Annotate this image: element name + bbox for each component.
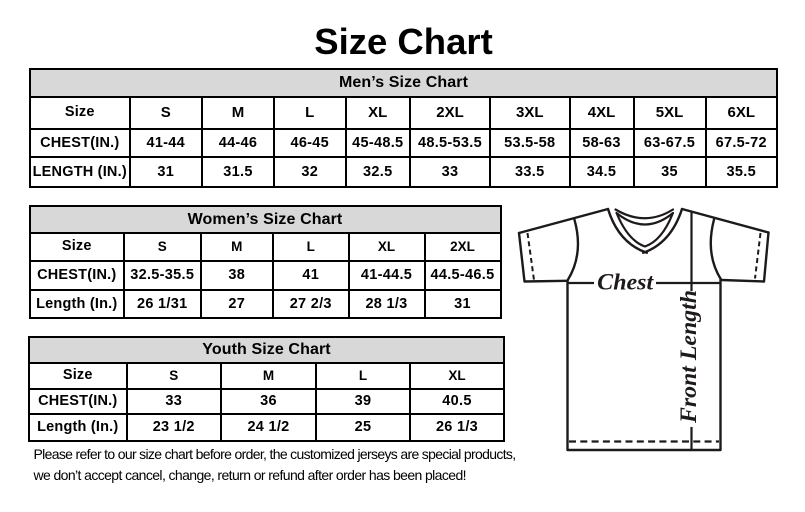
svg-text:Front Length: Front Length (676, 290, 701, 424)
svg-text:Chest: Chest (597, 270, 654, 295)
